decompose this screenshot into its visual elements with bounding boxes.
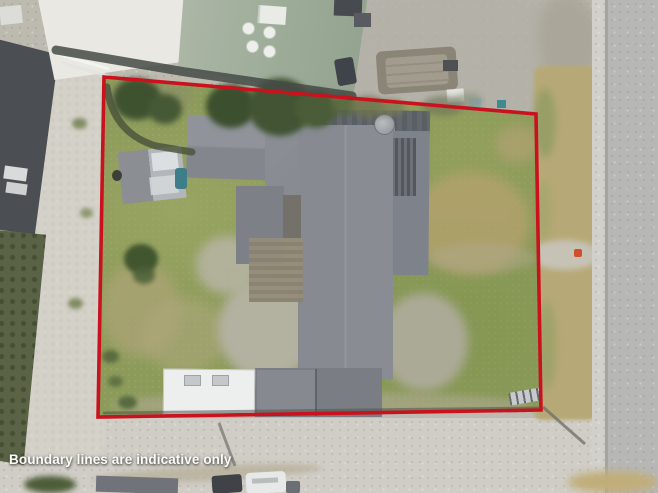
street-object [286,481,300,493]
weed [118,396,137,409]
weed [108,376,123,387]
dirt-path [428,243,536,273]
weed [102,350,119,363]
caravan-vent [212,375,229,386]
boat-hull [385,54,449,88]
dry-grass-patch [142,298,227,373]
house-step [283,195,301,241]
mailbox [574,249,582,257]
vehicle-dark [211,474,242,493]
road-right [608,0,658,493]
yard-item-teal [497,100,506,108]
verge-green-patch [534,88,556,158]
shed-object [112,170,122,181]
caravan-vent [184,375,201,386]
house-main-roof [298,125,393,380]
ac-unit [354,13,371,27]
verge-green-patch [536,180,552,240]
building-roof-bottom [96,476,179,493]
roof-vent [263,26,276,39]
roof-vent [246,40,259,53]
satellite-dish-icon [374,114,395,135]
dry-grass-patch [495,125,540,163]
garage-roof-seam [315,369,317,416]
rooftop-box [257,5,286,25]
lawn-bush [133,266,155,284]
garage-roof-left [257,370,315,415]
white-corner-structure [0,5,23,25]
wood-deck [249,238,303,302]
roof-vent [242,22,255,35]
weed [68,298,83,309]
caption-text: Boundary lines are indicative only [9,452,231,467]
weed [72,118,87,129]
weed [80,208,93,218]
street-trees [24,476,76,493]
dry-grass-corner [568,471,658,493]
pergola-slats [389,138,416,196]
yard-item-dark [443,60,458,71]
shrub [453,93,483,110]
water-barrel [175,168,187,189]
tree-canopy [148,94,182,124]
verge-green-patch [538,300,556,390]
shrub [377,99,405,116]
roof-vent [263,45,276,58]
verge-crossing [530,240,600,270]
aerial-photo: Boundary lines are indicative only [0,0,658,493]
caravan [163,369,255,416]
gravel-patio [380,293,468,391]
